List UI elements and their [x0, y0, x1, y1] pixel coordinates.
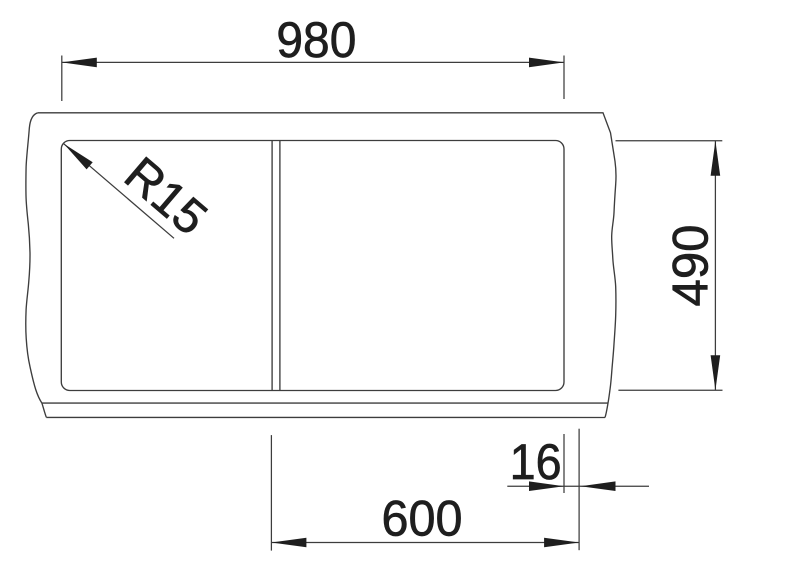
svg-text:16: 16: [510, 433, 562, 490]
svg-text:490: 490: [661, 225, 718, 307]
svg-text:980: 980: [276, 11, 356, 68]
svg-text:600: 600: [382, 490, 463, 547]
svg-text:R15: R15: [114, 147, 217, 246]
